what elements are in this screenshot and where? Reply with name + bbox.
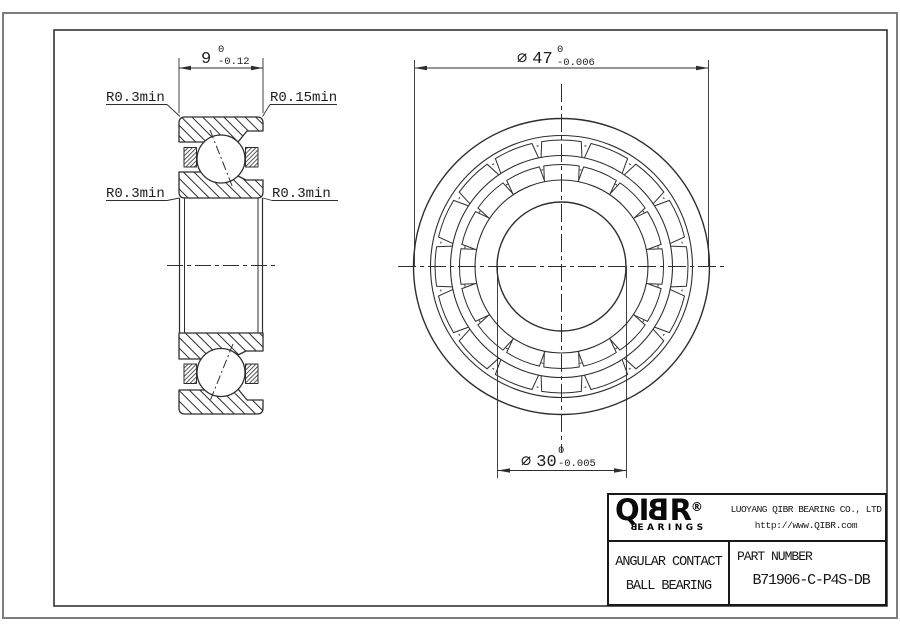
bore-dim-value: 30 [536, 453, 556, 472]
od-dim-tol-lower: -0.006 [557, 57, 595, 69]
part-number-value: B71906-C-P4S-DB [737, 572, 885, 589]
radius-label-top-right: R0.15min [270, 90, 337, 106]
arrowhead-right [251, 66, 263, 70]
radius-label-top-left: R0.3min [106, 90, 165, 106]
width-dim-value: 9 [201, 50, 211, 69]
logo-letters-qi: QI [615, 493, 648, 527]
side-view-section [167, 117, 278, 414]
width-dimension: 9 0 -0.12 [179, 44, 263, 113]
arrowhead-right [696, 66, 709, 70]
front-view [398, 84, 726, 452]
bore-dim-text: ⌀30 [521, 453, 557, 472]
diameter-symbol: ⌀ [517, 50, 527, 69]
company-info: LUOYANG QIBR BEARING CO., LTD http://www… [727, 495, 885, 540]
cage-block-upper-right [246, 148, 259, 168]
radius-label-bottom-left: R0.3min [106, 186, 165, 202]
cage-block-upper-left [184, 148, 197, 168]
part-number-label: PART NUMBER [737, 549, 885, 564]
od-dim-value: 47 [532, 50, 552, 69]
cage-block-lower-left [184, 364, 197, 384]
registered-trademark-symbol: ® [691, 500, 703, 514]
arrowhead-left [179, 66, 191, 70]
bore-dim-tol-lower: -0.005 [558, 458, 596, 470]
title-block-top-row: QIBR® BEARINGS LUOYANG QIBR BEARING CO.,… [609, 495, 885, 542]
bore-dim-tol-upper: 0 [558, 445, 564, 457]
product-name-cell: ANGULAR CONTACT BALL BEARING [609, 542, 730, 606]
logo-letter-b-mirrored: B [648, 496, 669, 525]
qibr-logo: QIBR® BEARINGS [615, 496, 707, 533]
product-line-2: BALL BEARING [626, 579, 711, 594]
title-block-bottom-row: ANGULAR CONTACT BALL BEARING PART NUMBER… [609, 542, 885, 606]
arrowhead-left [498, 468, 511, 472]
diameter-symbol: ⌀ [521, 453, 531, 472]
product-line-1: ANGULAR CONTACT [615, 555, 722, 570]
ball-upper [197, 135, 245, 183]
cage-block-lower-right [246, 364, 259, 384]
arrowhead-left [415, 66, 428, 70]
radius-label-bottom-right: R0.3min [272, 186, 331, 202]
part-number-cell: PART NUMBER B71906-C-P4S-DB [730, 542, 885, 606]
title-block: QIBR® BEARINGS LUOYANG QIBR BEARING CO.,… [607, 493, 887, 606]
company-website: http://www.QIBR.com [755, 520, 858, 531]
drawing-page: 9 0 -0.12 R0.3min R0.15min R0.3min R0.3m… [0, 0, 900, 636]
od-dim-text: ⌀47 [517, 50, 553, 69]
logo-wordmark: QIBR® [615, 496, 707, 525]
logo-letter-r: R [670, 493, 691, 527]
od-dim-tol-upper: 0 [557, 44, 563, 56]
width-dim-tol-lower: -0.12 [218, 56, 250, 68]
width-dim-tol-upper: 0 [218, 44, 224, 56]
company-name: LUOYANG QIBR BEARING CO., LTD [731, 504, 882, 515]
tagline-letter-b-mirrored: B [627, 524, 637, 533]
arrowhead-right [614, 468, 627, 472]
